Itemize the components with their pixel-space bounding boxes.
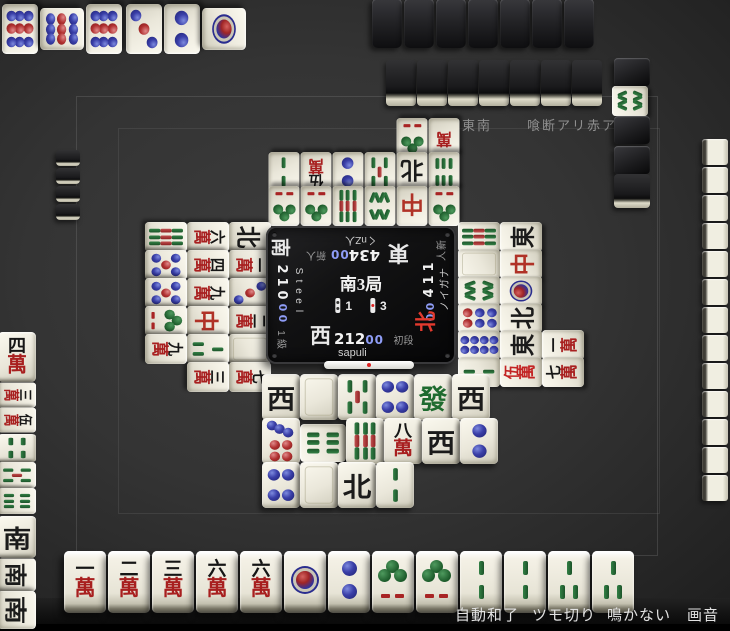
- riichi-stick-deposit: [324, 361, 414, 369]
- tile-1p: [500, 276, 542, 306]
- rank-left: 級: [273, 337, 287, 351]
- left-hand-tile-back: [56, 204, 80, 220]
- right-hand-tile-side: [702, 391, 728, 417]
- tile-P: [300, 462, 338, 508]
- tile-8p: [458, 330, 500, 360]
- right-hand-tile-side: [702, 419, 728, 445]
- tile-4p: [376, 374, 414, 420]
- right-hand-tile-side: [702, 335, 728, 361]
- tile-1s: [300, 186, 331, 226]
- tile-C: 中: [187, 306, 229, 336]
- wall-tile-back: [564, 0, 594, 48]
- hand-tile-6m[interactable]: 六萬: [196, 551, 238, 613]
- tile-3m: 三萬: [0, 382, 36, 407]
- tile-6s: [300, 424, 346, 462]
- tile-1s: [428, 186, 459, 226]
- hand-tile-3m[interactable]: 三萬: [152, 551, 194, 613]
- score-left: 1: [274, 275, 288, 289]
- player-name-right: ノ: [439, 299, 453, 313]
- hand-tile-6m[interactable]: 六萬: [240, 551, 282, 613]
- tile-1s: [145, 306, 187, 336]
- stick-counters: 1 3: [335, 298, 386, 313]
- top-hand-tile-back: [417, 60, 447, 106]
- tile-2p: [460, 418, 498, 464]
- tile-F: 發: [414, 374, 452, 420]
- riichi-stick-icon: [370, 298, 375, 313]
- tile-9m: 九萬: [187, 278, 229, 308]
- tile-6s: [0, 488, 36, 514]
- right-hand-tile-side: [702, 307, 728, 333]
- tile-6p: [458, 303, 500, 333]
- tile-5p: [145, 250, 187, 280]
- top-hand-tile-back: [386, 60, 416, 106]
- top-hand-tile-back: [479, 60, 509, 106]
- menu-item-no-call[interactable]: 鳴かない: [607, 604, 671, 625]
- rules-length-label: 東南: [462, 115, 492, 134]
- top-hand-tile-back: [541, 60, 571, 106]
- tile-1m: 一萬: [542, 330, 584, 360]
- bottom-black-strip: [0, 624, 730, 631]
- score-right: 4: [423, 286, 437, 300]
- tile-C: 中: [396, 186, 427, 226]
- seat-wind-top: 東: [388, 242, 409, 264]
- dead-wall-tile-back: [614, 58, 650, 86]
- right-hand-tile-side: [702, 363, 728, 389]
- tile-5s: [338, 374, 376, 420]
- tile-9p: [86, 4, 122, 54]
- rank-top: 新人: [306, 248, 326, 266]
- player-name-bottom: sapuli: [338, 347, 367, 359]
- dead-wall-tile-back: [614, 174, 650, 208]
- game-table: 東南 喰断アリ赤アリ 四萬三萬伍萬南南南萬伍萬北中北一萬二萬七萬六萬四萬九萬中三…: [0, 0, 730, 631]
- hand-tile-2m[interactable]: 二萬: [108, 551, 150, 613]
- right-hand-tile-side: [702, 251, 728, 277]
- tile-P: [458, 249, 500, 279]
- tile-C: 中: [500, 249, 542, 279]
- tile-4m: 四萬: [0, 332, 36, 382]
- right-hand-tile-side: [702, 223, 728, 249]
- tile-S: 南: [0, 516, 36, 558]
- hand-tile-1s[interactable]: [372, 551, 414, 613]
- tile-9p: [40, 8, 84, 50]
- top-hand-tile-back: [448, 60, 478, 106]
- tile-3p: [229, 278, 271, 308]
- hand-tile-1p[interactable]: [284, 551, 326, 613]
- dead-wall-tile-back: [614, 116, 650, 144]
- rank-right: 人: [436, 249, 450, 263]
- tile-8s: [458, 276, 500, 306]
- tile-7p: [262, 418, 300, 464]
- right-hand-tile-side: [702, 447, 728, 473]
- score-left: 0: [274, 288, 288, 302]
- tile-0m: 伍萬: [500, 357, 542, 387]
- tile-8s: [364, 186, 395, 226]
- tile-W: 西: [452, 374, 490, 420]
- tile-3m: 三萬: [187, 362, 229, 392]
- tile-1m: 一萬: [229, 250, 271, 280]
- wall-tile-back: [372, 0, 402, 48]
- left-hand-tile-back: [56, 168, 80, 184]
- tile-5m: 伍萬: [0, 407, 36, 432]
- tile-6m: 六萬: [187, 222, 229, 252]
- tile-9s: [458, 222, 500, 252]
- hand-tile-1m[interactable]: 一萬: [64, 551, 106, 613]
- wall-tile-back: [500, 0, 530, 48]
- tile-S: 南: [0, 558, 36, 591]
- rank-bottom: 初段: [393, 336, 413, 347]
- score-right: 1: [423, 260, 437, 274]
- top-hand-tile-back: [510, 60, 540, 106]
- dora-indicator-tile: [612, 86, 648, 116]
- right-hand-tile-side: [702, 475, 728, 501]
- tile-N: 北: [229, 222, 271, 252]
- wall-tile-back: [404, 0, 434, 48]
- right-hand-tile-side: [702, 167, 728, 193]
- tile-8m: 八萬: [384, 418, 422, 464]
- right-hand-tile-side: [702, 279, 728, 305]
- tile-E: 東: [500, 330, 542, 360]
- tile-9s: [346, 418, 384, 464]
- score-left: 0: [275, 312, 289, 326]
- tile-4m: 四萬: [187, 250, 229, 280]
- tile-9s: [145, 222, 187, 252]
- seat-wind-right: 北: [419, 318, 433, 332]
- score-right: 1: [423, 273, 437, 287]
- seat-wind-bottom: 西: [310, 326, 331, 347]
- score-left: 2: [274, 262, 288, 276]
- tile-7m: 七萬: [542, 357, 584, 387]
- menu-item-auto-win[interactable]: 自動和了: [455, 604, 519, 625]
- tile-2p: [164, 4, 200, 54]
- tile-9s: [332, 186, 363, 226]
- hand-tile-1s[interactable]: [416, 551, 458, 613]
- round-label: 南3局: [340, 270, 383, 295]
- menu-item-display-sound[interactable]: 画音: [687, 604, 719, 625]
- tile-3p: [126, 4, 162, 54]
- tile-W: 西: [262, 374, 300, 420]
- tile-1s: [268, 186, 299, 226]
- tile-4p: [262, 462, 300, 508]
- tile-9m: 九萬: [145, 334, 187, 364]
- tile-2m: 二萬: [229, 306, 271, 336]
- wall-tile-back: [468, 0, 498, 48]
- player-name-left: l: [291, 304, 305, 318]
- tile-S: 南: [0, 591, 36, 629]
- tile-3s: [187, 334, 229, 364]
- tile-P: [229, 334, 271, 364]
- score-top: 43400: [330, 245, 380, 264]
- left-hand-tile-back: [56, 186, 80, 202]
- tile-W: 西: [422, 418, 460, 464]
- honba-stick-icon: [335, 298, 340, 313]
- tile-N: 北: [338, 462, 376, 508]
- right-hand-tile-side: [702, 139, 728, 165]
- dead-wall-tile-back: [614, 146, 650, 174]
- right-hand-tile-side: [702, 195, 728, 221]
- seat-wind-left: 南: [272, 238, 286, 252]
- tile-1p: [202, 8, 246, 50]
- hand-tile-2p[interactable]: [328, 551, 370, 613]
- deposit-count: 3: [380, 299, 387, 313]
- menu-item-tsumogiri[interactable]: ツモ切り: [532, 604, 596, 625]
- tile-E: 東: [500, 222, 542, 252]
- tile-9p: [2, 4, 38, 54]
- tile-5s: [0, 462, 36, 488]
- tile-4s: [0, 434, 36, 462]
- honba-count: 1: [345, 299, 352, 313]
- center-info-panel: 南3局 1 3 西 21200 初段 sapuli くnZ人 新人 43400 …: [266, 226, 456, 364]
- top-hand-tile-back: [572, 60, 602, 106]
- wall-tile-back: [532, 0, 562, 48]
- left-hand-tile-back: [56, 150, 80, 166]
- wall-tile-back: [436, 0, 466, 48]
- tile-5p: [145, 278, 187, 308]
- tile-P: [300, 374, 338, 420]
- tile-2s: [376, 462, 414, 508]
- tile-N: 北: [500, 303, 542, 333]
